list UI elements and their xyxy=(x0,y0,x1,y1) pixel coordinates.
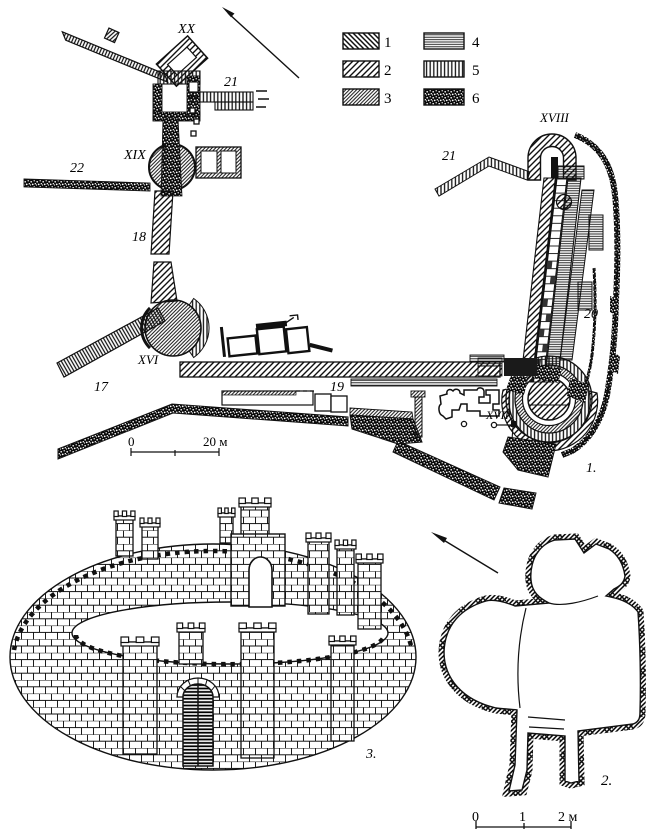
svg-text:18: 18 xyxy=(132,230,146,245)
svg-text:22: 22 xyxy=(70,161,84,176)
svg-text:20 м: 20 м xyxy=(203,434,227,449)
svg-text:2.: 2. xyxy=(601,773,612,789)
svg-text:1: 1 xyxy=(519,810,526,825)
svg-text:XVI: XVI xyxy=(137,352,159,367)
svg-text:4: 4 xyxy=(472,35,480,51)
svg-text:XX: XX xyxy=(177,22,196,37)
svg-text:0: 0 xyxy=(128,434,135,449)
svg-text:21: 21 xyxy=(224,75,238,90)
svg-text:2: 2 xyxy=(384,63,392,79)
svg-text:0: 0 xyxy=(472,810,479,825)
svg-text:3.: 3. xyxy=(365,747,377,762)
svg-text:21: 21 xyxy=(442,149,456,164)
svg-text:5: 5 xyxy=(472,63,480,79)
svg-text:XIX: XIX xyxy=(123,148,146,163)
svg-text:3: 3 xyxy=(384,91,392,107)
svg-text:19: 19 xyxy=(330,380,344,395)
svg-text:1.: 1. xyxy=(586,461,597,476)
svg-text:2 м: 2 м xyxy=(558,810,578,825)
svg-text:6: 6 xyxy=(472,91,480,107)
svg-text:XVIII: XVIII xyxy=(539,110,570,125)
svg-text:1: 1 xyxy=(384,35,392,51)
svg-text:17: 17 xyxy=(94,380,109,395)
